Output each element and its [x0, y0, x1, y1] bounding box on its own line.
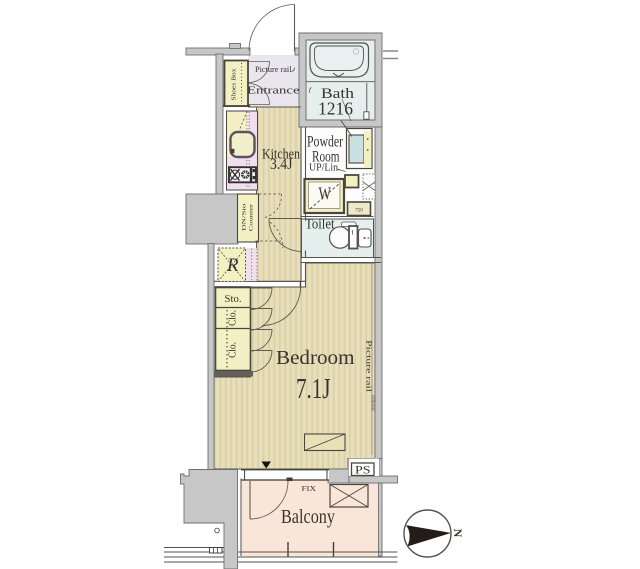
- svg-text:Sto.: Sto.: [225, 294, 242, 305]
- svg-text:Clo.: Clo.: [228, 310, 239, 326]
- svg-text:1216: 1216: [318, 99, 353, 119]
- svg-text:Bedroom: Bedroom: [276, 347, 355, 369]
- svg-text:3.4J: 3.4J: [270, 156, 293, 173]
- svg-text:Balcony: Balcony: [281, 506, 335, 528]
- svg-text:7.1J: 7.1J: [296, 374, 331, 405]
- svg-text:Counter: Counter: [248, 204, 254, 231]
- svg-text:R: R: [226, 255, 239, 276]
- svg-text:Toilet: Toilet: [305, 217, 335, 233]
- svg-text:W: W: [319, 183, 332, 203]
- svg-text:Shoes Box: Shoes Box: [232, 68, 238, 100]
- svg-text:PS: PS: [355, 465, 371, 477]
- svg-text:Clo.: Clo.: [228, 342, 239, 358]
- svg-text:FIX: FIX: [302, 484, 317, 493]
- svg-text:JDTK0012: JDTK0012: [371, 395, 375, 411]
- svg-text:UP/Lin.: UP/Lin.: [309, 163, 341, 174]
- svg-text:N: N: [451, 529, 465, 538]
- svg-text:Picture rail: Picture rail: [255, 65, 292, 74]
- svg-text:Picture rail: Picture rail: [365, 340, 373, 392]
- svg-text:Entrance: Entrance: [247, 85, 300, 96]
- svg-text:DN/Sto: DN/Sto: [241, 203, 247, 230]
- svg-text:750: 750: [355, 209, 363, 214]
